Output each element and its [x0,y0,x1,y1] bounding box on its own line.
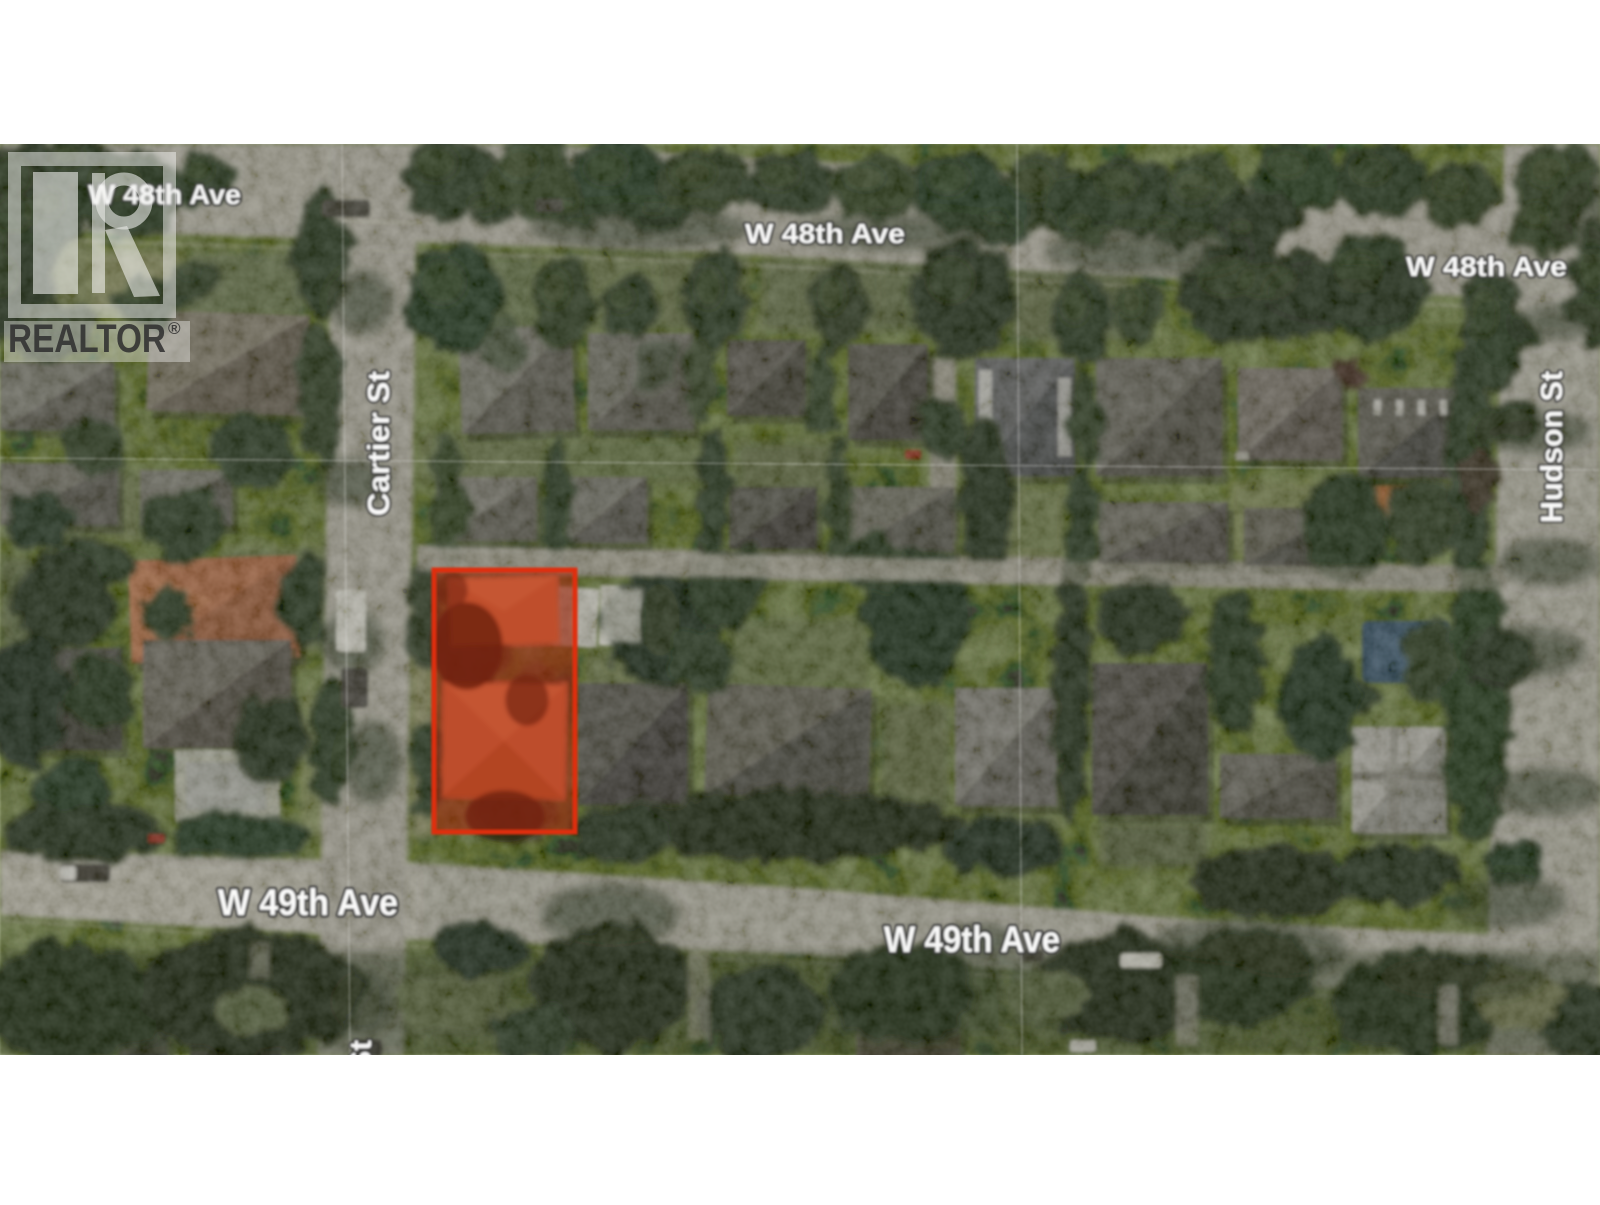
svg-text:Cartier St: Cartier St [361,371,396,516]
svg-text:Hudson St: Hudson St [1534,371,1569,523]
svg-text:REALTOR: REALTOR [8,317,166,361]
svg-text:W 48th Ave: W 48th Ave [745,218,905,249]
svg-text:W 49th Ave: W 49th Ave [218,882,398,923]
svg-text:W 49th Ave: W 49th Ave [884,919,1060,960]
svg-text:®: ® [168,319,181,338]
svg-text:W 48th Ave: W 48th Ave [1406,251,1567,282]
